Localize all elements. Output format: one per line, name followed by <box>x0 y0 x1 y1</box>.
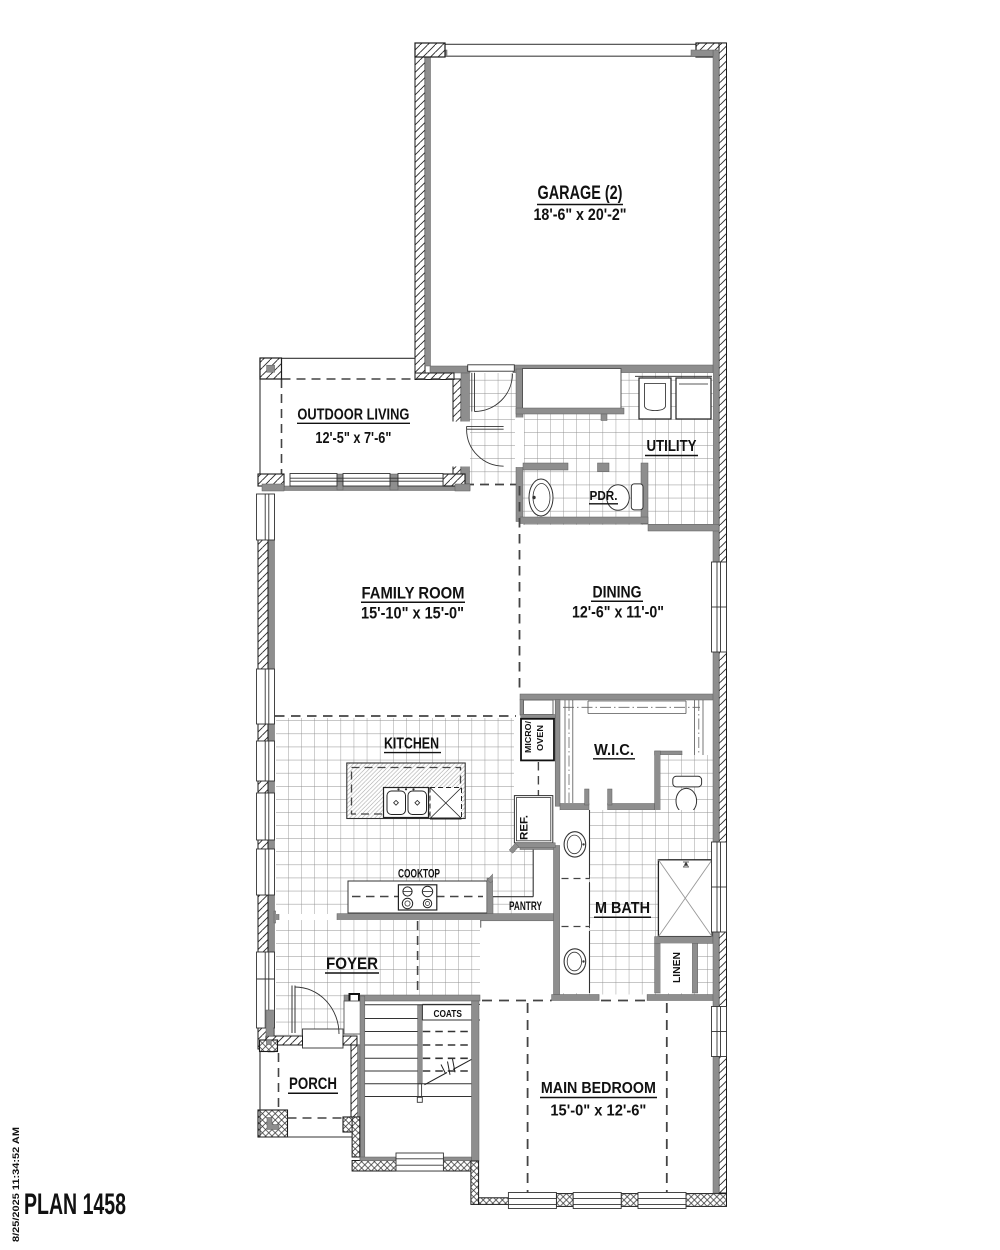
svg-text:DINING: DINING <box>593 583 642 602</box>
svg-text:COATS: COATS <box>433 1008 462 1020</box>
svg-text:M BATH: M BATH <box>595 900 650 917</box>
svg-text:15'-0" x 12'-6": 15'-0" x 12'-6" <box>550 1103 646 1120</box>
svg-text:PORCH: PORCH <box>289 1074 337 1093</box>
svg-text:OUTDOOR LIVING: OUTDOOR LIVING <box>297 407 409 424</box>
svg-text:MAIN BEDROOM: MAIN BEDROOM <box>541 1080 656 1097</box>
svg-text:12'-6" x 11'-0": 12'-6" x 11'-0" <box>572 603 664 622</box>
svg-text:KITCHEN: KITCHEN <box>384 736 439 753</box>
svg-text:PLAN 1458: PLAN 1458 <box>24 1188 126 1221</box>
svg-text:8/25/2025 11:34:52 AM: 8/25/2025 11:34:52 AM <box>11 1127 22 1242</box>
svg-text:GARAGE (2): GARAGE (2) <box>538 183 623 204</box>
svg-text:W.I.C.: W.I.C. <box>594 742 634 759</box>
svg-text:FAMILY ROOM: FAMILY ROOM <box>362 584 465 603</box>
svg-text:REF.: REF. <box>519 815 531 840</box>
svg-text:PDR.: PDR. <box>590 489 618 503</box>
svg-text:PANTRY: PANTRY <box>509 901 542 913</box>
svg-text:COOKTOP: COOKTOP <box>398 869 440 881</box>
svg-text:MICRO/: MICRO/ <box>523 720 533 753</box>
svg-text:LINEN: LINEN <box>671 952 683 983</box>
svg-text:FOYER: FOYER <box>326 954 378 973</box>
svg-text:12'-5" x 7'-6": 12'-5" x 7'-6" <box>315 430 391 447</box>
svg-text:OVEN: OVEN <box>535 725 545 751</box>
svg-text:18'-6" x 20'-2": 18'-6" x 20'-2" <box>534 205 627 224</box>
svg-text:15'-10" x 15'-0": 15'-10" x 15'-0" <box>361 604 464 623</box>
svg-text:UTILITY: UTILITY <box>647 438 698 455</box>
